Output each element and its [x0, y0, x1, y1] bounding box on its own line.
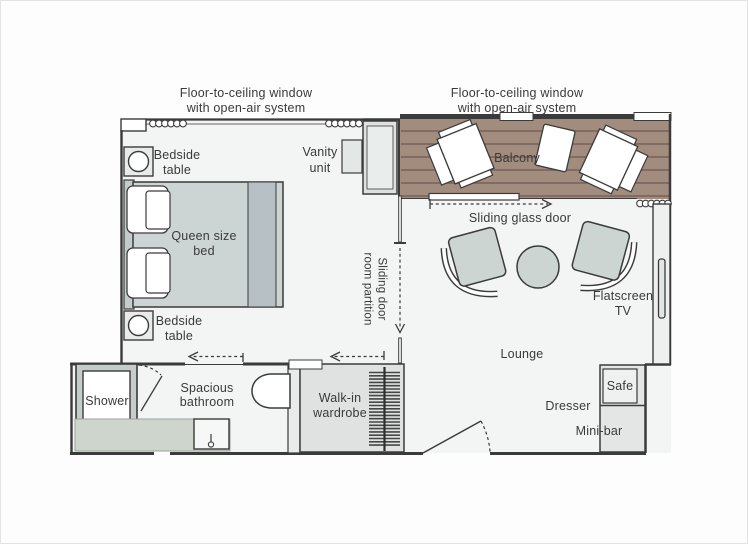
safe-label: Safe	[607, 379, 634, 393]
floor-plan-svg: Floor-to-ceiling window with open-air sy…	[0, 0, 748, 544]
curtain-coil-icon	[326, 120, 363, 127]
bedside-table-bottom-label: table	[165, 329, 193, 343]
hanger-rail-icon	[369, 367, 400, 451]
flatscreen-tv	[659, 259, 666, 318]
bedside-table-bottom	[124, 311, 153, 340]
bedside-table-top-label: table	[163, 163, 191, 177]
door-panel	[429, 194, 519, 201]
vanity-label: Vanity	[302, 145, 338, 159]
wardrobe-opening	[289, 360, 322, 369]
svg-text:room partition: room partition	[362, 252, 374, 325]
window-label-right: with open-air system	[457, 101, 577, 115]
vanity-stool	[342, 140, 362, 173]
bed-label: Queen size	[171, 229, 236, 243]
lamp-icon	[129, 316, 149, 336]
window-label-left: Floor-to-ceiling window	[180, 86, 313, 100]
bed-runner	[248, 182, 276, 307]
svg-text:Sliding door: Sliding door	[376, 257, 388, 320]
shower-label: Shower	[85, 394, 129, 408]
sliding-glass-door-label: Sliding glass door	[469, 211, 571, 225]
lamp-icon	[129, 152, 149, 172]
wardrobe-label: Walk-in	[319, 391, 362, 405]
dresser-label: Dresser	[545, 399, 590, 413]
bedside-table-top-label: Bedside	[154, 148, 201, 162]
lounge-round-table	[517, 246, 559, 288]
vanity-label: unit	[310, 161, 331, 175]
corner-step	[121, 119, 146, 131]
lounge-label: Lounge	[501, 347, 544, 361]
bathroom-label: bathroom	[180, 395, 234, 409]
pillow	[146, 191, 170, 229]
bed-label: bed	[193, 244, 214, 258]
tv-label: Flatscreen	[593, 289, 653, 303]
tv-wall-unit	[653, 204, 670, 364]
minibar-label: Mini-bar	[576, 424, 623, 438]
window-label-right: Floor-to-ceiling window	[451, 86, 584, 100]
bedside-table-bottom-label: Bedside	[156, 314, 203, 328]
bedside-table-top	[124, 147, 153, 176]
curtain-coil-icon	[150, 120, 187, 127]
tv-label: TV	[615, 304, 632, 318]
bathroom-label: Spacious	[180, 381, 233, 395]
window-label-left: with open-air system	[186, 101, 306, 115]
pillow	[146, 253, 170, 293]
wardrobe-label: wardrobe	[312, 406, 367, 420]
toilet	[252, 374, 290, 408]
floor-plan-image: Floor-to-ceiling window with open-air sy…	[0, 0, 748, 544]
balcony-label: Balcony	[494, 151, 540, 165]
